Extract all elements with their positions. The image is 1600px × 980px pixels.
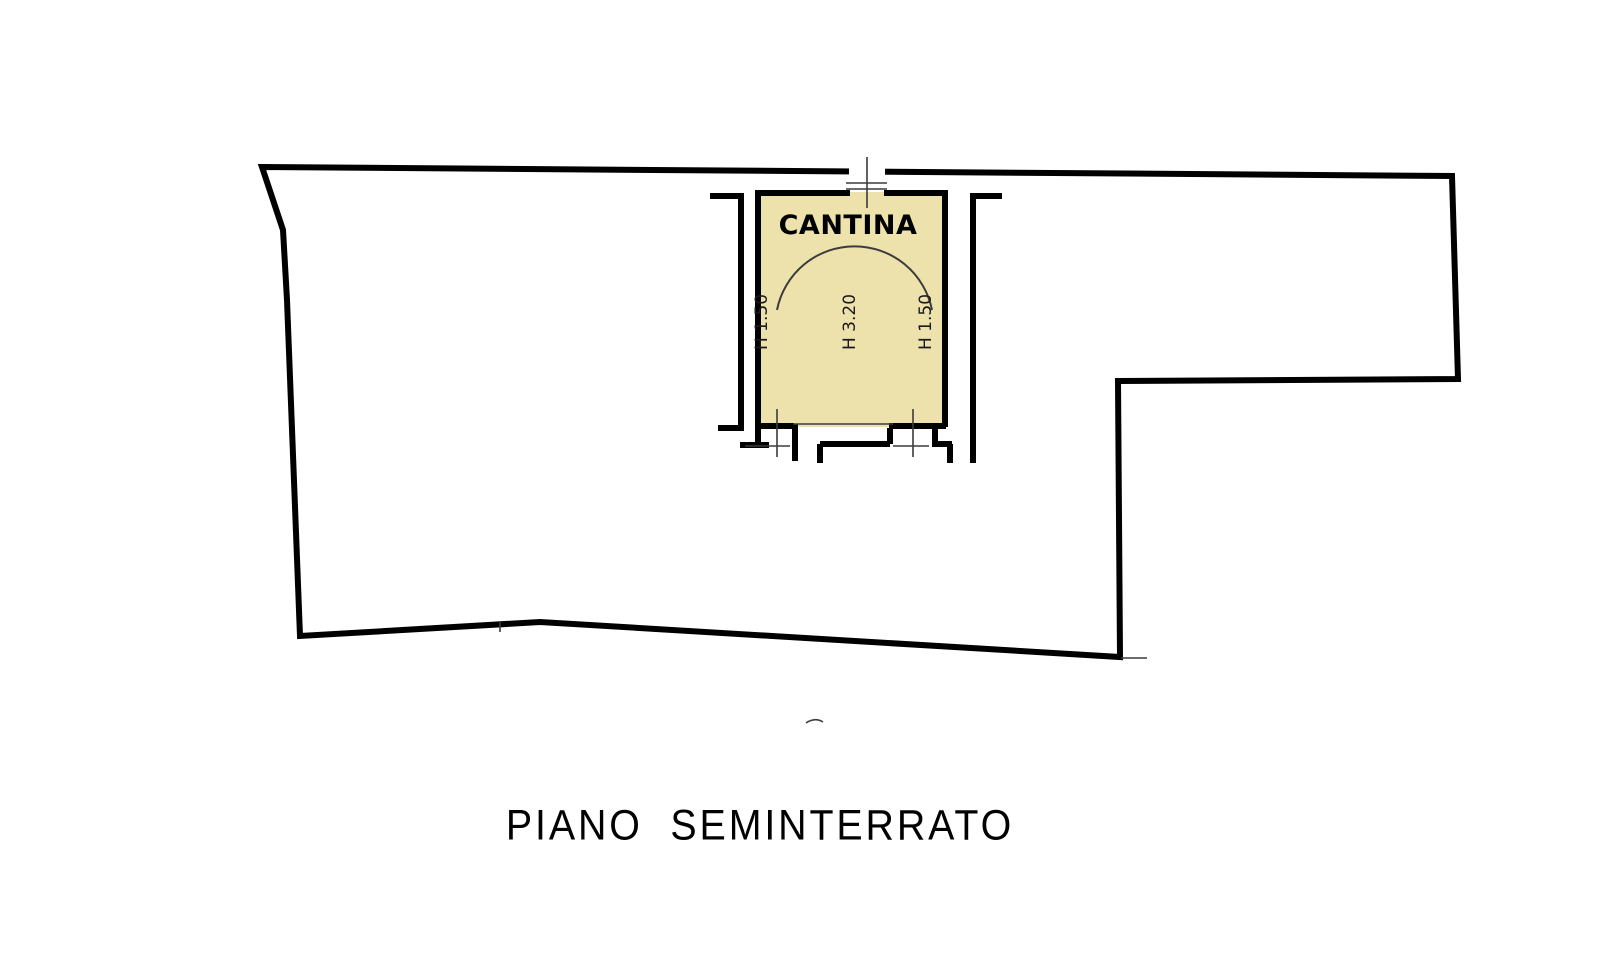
floor-title: PIANO SEMINTERRATO <box>414 801 1105 850</box>
floorplan-canvas: CANTINA H 1.50 H 3.20 H 1.50 PIANO SEMIN… <box>0 0 1600 980</box>
height-label-right-wrap: H 1.50 <box>866 311 986 333</box>
height-label-right: H 1.50 <box>915 262 937 382</box>
room-label-cantina: CANTINA <box>768 210 928 241</box>
height-label-left: H 1.50 <box>751 262 773 382</box>
height-label-center: H 3.20 <box>839 262 861 382</box>
